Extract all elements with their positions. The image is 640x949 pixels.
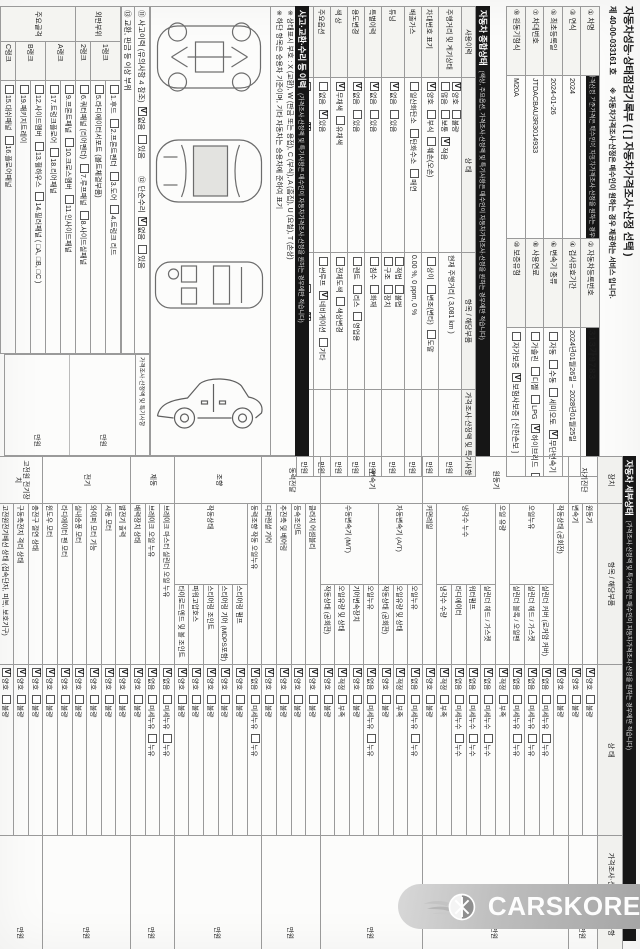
checkbox-checked[interactable] <box>426 668 435 677</box>
checkbox-checked[interactable] <box>427 82 436 91</box>
checkbox-unchecked[interactable] <box>5 136 14 145</box>
checkbox-unchecked[interactable] <box>455 734 464 743</box>
checkbox-unchecked[interactable] <box>65 85 74 94</box>
checkbox-unchecked[interactable] <box>353 695 362 704</box>
checkbox-checked[interactable] <box>324 668 333 677</box>
option: 누유 <box>162 732 169 756</box>
option: 많음 <box>440 80 447 105</box>
checkbox-unchecked[interactable] <box>452 110 461 119</box>
car-cabin-top-diagram <box>149 255 270 315</box>
checkbox-checked[interactable] <box>370 82 379 91</box>
checkbox-unchecked[interactable] <box>319 257 328 266</box>
checkbox-unchecked[interactable] <box>17 695 26 704</box>
checkbox-unchecked[interactable] <box>35 192 44 201</box>
option: 16.플로어패널 <box>4 134 11 188</box>
checkbox-checked[interactable] <box>319 291 328 300</box>
checkbox-unchecked[interactable] <box>80 85 89 94</box>
checkbox-checked[interactable] <box>396 668 405 677</box>
checkbox-unchecked[interactable] <box>148 734 157 743</box>
checkbox-checked[interactable] <box>390 82 399 91</box>
checkbox-unchecked[interactable] <box>367 695 376 704</box>
checkbox-checked[interactable] <box>119 668 128 677</box>
checkbox-unchecked[interactable] <box>353 312 362 321</box>
checkbox-unchecked[interactable] <box>382 695 391 704</box>
checkbox-unchecked[interactable] <box>549 332 558 341</box>
table-cell: 주요골격 <box>1 7 76 42</box>
table-cell: 없음있음 <box>382 78 405 253</box>
option: 없음 <box>352 80 359 105</box>
checkbox-checked[interactable] <box>353 668 362 677</box>
checkbox-checked[interactable] <box>549 430 558 439</box>
option: 없음 <box>389 80 396 105</box>
checkbox-unchecked[interactable] <box>32 695 41 704</box>
table-cell: 등속조인트 <box>291 504 306 665</box>
option: 양호 <box>585 666 592 690</box>
checkbox-unchecked[interactable] <box>90 695 99 704</box>
table-cell: ⑩ 보증유형 <box>507 239 526 328</box>
checkbox-unchecked[interactable] <box>410 129 419 138</box>
checkbox-unchecked[interactable] <box>338 695 347 704</box>
checkbox-unchecked[interactable] <box>513 695 522 704</box>
table-cell: 수동변속기 (M/T) <box>320 504 378 585</box>
table-cell: 작동상태 (공회전) <box>554 504 569 665</box>
option: 불량 <box>293 693 300 717</box>
checkbox-checked[interactable] <box>338 668 347 677</box>
checkbox-unchecked[interactable] <box>65 138 74 147</box>
option: 불량 <box>308 693 315 717</box>
checkbox-unchecked[interactable] <box>236 695 245 704</box>
checkbox-checked[interactable] <box>452 82 461 91</box>
option: 불량 <box>177 693 184 717</box>
checkbox-checked[interactable] <box>513 668 522 677</box>
checkbox-unchecked[interactable] <box>542 695 551 704</box>
table-cell: 오일누유 <box>364 584 379 665</box>
option: 있음 <box>137 133 146 159</box>
option: 양호 <box>264 666 271 690</box>
table-cell: 색 상 <box>331 7 348 78</box>
table-cell: 제동 <box>131 457 175 504</box>
table-cell: 실린더 헤드 / 가스켓 <box>525 584 540 665</box>
option: 양호 <box>89 666 96 690</box>
option: 불량 <box>425 693 432 717</box>
option: 14.필러패널 ( □A, □B, □C ) <box>34 190 41 283</box>
checkbox-unchecked[interactable] <box>35 142 44 151</box>
checkbox-checked[interactable] <box>309 668 318 677</box>
table-row: 주행거리 및 계기상태양호불량많음보통적음현재 주행거리 ( 3,081 km … <box>439 7 462 477</box>
checkbox-unchecked[interactable] <box>557 695 566 704</box>
option: 있음 <box>137 243 146 269</box>
checkbox-unchecked[interactable] <box>427 110 436 119</box>
checkbox-unchecked[interactable] <box>353 285 362 294</box>
checkbox-checked[interactable] <box>512 373 521 382</box>
table-row: 전기발전기 출력양호불량만원 <box>116 457 131 949</box>
checkbox-checked[interactable] <box>265 668 274 677</box>
checkbox-checked[interactable] <box>17 668 26 677</box>
table-cell: 없음미세누수누수 <box>452 665 467 836</box>
checkbox-checked[interactable] <box>542 668 551 677</box>
checkbox-unchecked[interactable] <box>484 695 493 704</box>
table-cell: 만원 <box>0 836 43 949</box>
field-line: 0.00 %, 0 ppm, 0 % <box>409 255 417 387</box>
table-cell: 구동축전지 격리 상태 <box>14 504 29 665</box>
checkbox-unchecked[interactable] <box>280 695 289 704</box>
checkbox-unchecked[interactable] <box>138 245 147 254</box>
table-cell: 고전원 전기장치 <box>0 457 43 504</box>
checkbox-unchecked[interactable] <box>528 695 537 704</box>
table-cell: 양호불량 <box>28 665 43 836</box>
option: 불량 <box>89 693 96 717</box>
option: 보험사보증 [ 신한손보 ] <box>511 371 520 453</box>
option: 양호 <box>177 666 184 690</box>
field-line: 없음있음 <box>368 80 379 250</box>
table-cell: 추진축 및 베어링 <box>276 504 291 665</box>
option: 불량 <box>118 693 125 717</box>
accident-price-header: 가격조사·산정액 및 특기사항 <box>135 355 149 455</box>
checkbox-checked[interactable] <box>134 668 143 677</box>
checkbox-unchecked[interactable] <box>370 110 379 119</box>
checkbox-unchecked[interactable] <box>411 734 420 743</box>
checkbox-unchecked[interactable] <box>336 297 345 306</box>
option: 침수 <box>369 255 376 280</box>
checkbox-unchecked[interactable] <box>512 332 521 341</box>
table-cell: 적정부족 <box>393 665 408 836</box>
checkbox-unchecked[interactable] <box>294 695 303 704</box>
field-line: 일산화탄소탄화수소매연 <box>408 80 419 250</box>
checkbox-unchecked[interactable] <box>61 695 70 704</box>
checkbox-unchecked[interactable] <box>469 695 478 704</box>
table-cell: 양호불량 <box>174 665 189 836</box>
option: 적법 <box>394 255 401 280</box>
option: 영업용 <box>352 310 359 341</box>
checkbox-unchecked[interactable] <box>65 195 74 204</box>
table-cell: 발전기 출력 <box>116 504 131 665</box>
table-cell: 라디에이터 팬 모터 <box>58 504 73 665</box>
checkbox-checked[interactable] <box>557 668 566 677</box>
option: 훼손(오손) <box>426 135 433 177</box>
roof-top-icon <box>152 133 267 209</box>
field-line: ⑨ 원동기형식 <box>512 9 520 73</box>
accident-history-row: ⑪ 사고이력 (유의사항 4 참조) 없음있음⑫ 단순수리 없음있음 <box>134 6 150 354</box>
checkbox-unchecked[interactable] <box>163 695 172 704</box>
checkbox-unchecked[interactable] <box>395 285 404 294</box>
checkbox-unchecked[interactable] <box>426 695 435 704</box>
checkbox-unchecked[interactable] <box>221 695 230 704</box>
checkbox-unchecked[interactable] <box>370 285 379 294</box>
checkbox-checked[interactable] <box>105 668 114 677</box>
checkbox-unchecked[interactable] <box>138 135 147 144</box>
checkbox-unchecked[interactable] <box>390 110 399 119</box>
table-cell: 없음있음 <box>314 78 331 253</box>
checkbox-unchecked[interactable] <box>119 695 128 704</box>
table-cell: 커먼레일 <box>422 504 437 665</box>
checkbox-unchecked[interactable] <box>251 734 260 743</box>
checkbox-unchecked[interactable] <box>427 330 436 339</box>
checkbox-unchecked[interactable] <box>427 257 436 266</box>
field-line: M20A <box>512 78 520 236</box>
option: 썬루프 <box>318 255 325 286</box>
field-line: ⑪ 사고이력 (유의사항 4 참조) 없음있음 <box>137 10 148 162</box>
checkbox-checked[interactable] <box>46 668 55 677</box>
overall-status-table: 사용이력상 태항목 / 해당부품가격조사·산정액 및 특기사항주행거리 및 계기… <box>296 6 476 477</box>
checkbox-unchecked[interactable] <box>80 164 89 173</box>
checkbox-checked[interactable] <box>441 137 450 146</box>
field-line: 17.트렁크플로어18.리어패널 <box>47 83 58 351</box>
option: 없음 <box>369 80 376 105</box>
scanned-document-viewport: 자동차성능·상태점검기록부 ( [ ] 자동차가격조사·산정 선택 ) 제 40… <box>0 0 640 949</box>
table-cell: 특별이력 <box>365 7 382 78</box>
option: 9.프론트패널 <box>64 83 71 133</box>
checkbox-unchecked[interactable] <box>80 211 89 220</box>
option: 양호 <box>571 666 578 690</box>
option: 없음 <box>454 666 461 690</box>
checkbox-unchecked[interactable] <box>411 695 420 704</box>
checkbox-checked[interactable] <box>367 668 376 677</box>
option: 4.트렁크 리드 <box>109 203 116 255</box>
table-cell: C랭크 <box>1 42 16 81</box>
checkbox-checked[interactable] <box>440 668 449 677</box>
field-line: 19.패키지트레이 <box>17 83 28 351</box>
checkbox-unchecked[interactable] <box>549 388 558 397</box>
option: 불량 <box>191 693 198 717</box>
option: 미세누유 <box>147 693 154 729</box>
checkbox-checked[interactable] <box>294 668 303 677</box>
detail-status-section-bar: 자동차 세부상태 (가격조사·산정액 및 특기사항은 매수인이 자동차가격조사·… <box>623 456 636 941</box>
checkbox-unchecked[interactable] <box>95 85 104 94</box>
checkbox-unchecked[interactable] <box>427 137 436 146</box>
option: 적음 <box>440 135 447 160</box>
checkbox-unchecked[interactable] <box>35 85 44 94</box>
table-cell: 0.00 %, 0 ppm, 0 % <box>405 253 422 390</box>
checkbox-unchecked[interactable] <box>396 695 405 704</box>
checkbox-checked[interactable] <box>336 82 345 91</box>
checkbox-unchecked[interactable] <box>265 695 274 704</box>
checkbox-unchecked[interactable] <box>441 82 450 91</box>
table-cell: 만원 <box>131 836 175 949</box>
table-cell: 상 태 <box>462 78 476 253</box>
checkbox-unchecked[interactable] <box>531 332 540 341</box>
checkbox-checked[interactable] <box>353 82 362 91</box>
checkbox-unchecked[interactable] <box>5 85 14 94</box>
checkbox-checked[interactable] <box>382 668 391 677</box>
checkbox-unchecked[interactable] <box>110 172 119 181</box>
option: 세미오토 <box>548 386 557 424</box>
table-cell: 적법불법구조장치 <box>382 253 405 390</box>
checkbox-unchecked[interactable] <box>324 695 333 704</box>
checkbox-unchecked[interactable] <box>319 338 328 347</box>
car-diagram-panel <box>150 6 271 456</box>
option: 누유 <box>541 732 548 756</box>
table-cell: 배력장치 상태 <box>131 504 146 665</box>
checkbox-unchecked[interactable] <box>384 257 393 266</box>
option: 불량 <box>352 693 359 717</box>
option: 17.트렁크플로어 <box>49 83 56 143</box>
option: 양호 <box>133 666 140 690</box>
checkbox-unchecked[interactable] <box>531 395 540 404</box>
checkbox-checked[interactable] <box>163 668 172 677</box>
option: 미세누수 <box>454 693 461 729</box>
table-row: 조향동력조향 작동 오일누유없음미세누유누유만원 <box>247 457 262 949</box>
table-cell: 브레이크 마스터 실린더 오일 누유 <box>160 504 175 665</box>
checkbox-unchecked[interactable] <box>586 695 595 704</box>
option: 화재 <box>369 283 376 308</box>
checkbox-unchecked[interactable] <box>178 695 187 704</box>
checkbox-unchecked[interactable] <box>572 695 581 704</box>
checkbox-unchecked[interactable] <box>395 257 404 266</box>
checkbox-unchecked[interactable] <box>370 257 379 266</box>
table-cell: 썬루프네비게이션기타 <box>314 253 331 390</box>
option: 6.쿼터패널 (리어펜더) <box>79 83 86 159</box>
checkbox-unchecked[interactable] <box>528 734 537 743</box>
checkbox-unchecked[interactable] <box>110 85 119 94</box>
service-note: ※ 자동차가격조사·산정은 매수인이 원하는 경우 제공하는 서비스 입니다. <box>608 87 615 298</box>
checkbox-unchecked[interactable] <box>110 205 119 214</box>
field-line: 자가보증보험사보증 [ 신한손보 ] <box>511 330 521 474</box>
checkbox-unchecked[interactable] <box>499 695 508 704</box>
checkbox-checked[interactable] <box>236 668 245 677</box>
option: 불량 <box>1 693 8 717</box>
field-line: 양호부식훼손(오손) <box>425 80 436 250</box>
checkbox-unchecked[interactable] <box>384 285 393 294</box>
checkbox-unchecked[interactable] <box>207 695 216 704</box>
checkbox-unchecked[interactable] <box>110 119 119 128</box>
table-cell: 만원 <box>43 836 131 949</box>
table-row: 장치항목 / 해당부품상 태가격조사·산정액 및 특기사항 <box>598 457 623 949</box>
table-cell: 장치 <box>598 457 623 504</box>
checkbox-unchecked[interactable] <box>309 695 318 704</box>
checkbox-unchecked[interactable] <box>2 695 11 704</box>
table-cell: 없음미세누유누유 <box>408 665 423 836</box>
checkbox-checked[interactable] <box>138 107 147 116</box>
checkbox-unchecked[interactable] <box>20 85 29 94</box>
status-legend-notes: ※ 상태표시 부호 : X (교환), W (판금 또는 용접), C (부식)… <box>271 6 295 456</box>
option: 양호 <box>381 666 388 690</box>
table-row: 용도변경없음있음렌트리스영업용만원 <box>348 7 365 477</box>
checkbox-unchecked[interactable] <box>336 257 345 266</box>
checkbox-unchecked[interactable] <box>410 82 419 91</box>
option: 네비게이션 <box>318 289 325 333</box>
checkbox-checked[interactable] <box>484 668 493 677</box>
table-cell: 항목 / 해당부품 <box>462 253 476 390</box>
checkbox-checked[interactable] <box>207 668 216 677</box>
option: 디젤 <box>530 365 539 390</box>
checkbox-unchecked[interactable] <box>469 734 478 743</box>
checkbox-unchecked[interactable] <box>427 285 436 294</box>
checkbox-checked[interactable] <box>455 668 464 677</box>
checkbox-unchecked[interactable] <box>549 360 558 369</box>
checkbox-unchecked[interactable] <box>542 734 551 743</box>
table-cell: 없음미세누유누유 <box>525 665 540 836</box>
checkbox-unchecked[interactable] <box>531 367 540 376</box>
checkbox-unchecked[interactable] <box>441 110 450 119</box>
checkbox-checked[interactable] <box>75 668 84 677</box>
checkbox-unchecked[interactable] <box>163 734 172 743</box>
table-row: 2랭크6.쿼터패널 (리어펜더)7.루프패널8.사이드실패널 <box>76 7 91 354</box>
table-cell: 2024년01월26일 ~ 2028년01월25일 <box>563 328 582 477</box>
table-cell: 양호불량 <box>72 665 87 836</box>
option: 양호 <box>323 666 330 690</box>
field-line: 9.프론트패널10.크로스멤버11.인사이드패널 <box>62 83 73 351</box>
table-cell: 충전구 절연 상태 <box>28 504 43 665</box>
checkbox-checked[interactable] <box>499 668 508 677</box>
checkbox-checked[interactable] <box>192 668 201 677</box>
option: 일산화탄소 <box>409 80 416 124</box>
watermark-text: CARSKOREA <box>488 891 640 922</box>
checkbox-unchecked[interactable] <box>319 82 328 91</box>
checkbox-checked[interactable] <box>251 668 260 677</box>
table-cell: ① 차명 <box>581 7 600 76</box>
checkbox-checked[interactable] <box>319 110 328 119</box>
checkbox-checked[interactable] <box>411 668 420 677</box>
checkbox-unchecked[interactable] <box>251 695 260 704</box>
checkbox-checked[interactable] <box>586 668 595 677</box>
option: 15.대쉬패널 <box>4 83 11 131</box>
checkbox-checked[interactable] <box>138 217 147 226</box>
checkbox-unchecked[interactable] <box>50 148 59 157</box>
checkbox-checked[interactable] <box>32 668 41 677</box>
basic-info-table: ① 차명도요타 Prius 2WD (세부모델 : )② 자동차등록번호313가… <box>507 6 601 477</box>
checkbox-unchecked[interactable] <box>440 695 449 704</box>
checkbox-checked[interactable] <box>572 668 581 677</box>
table-cell: 실린더 블록 / 오일팬 <box>510 584 525 665</box>
checkbox-unchecked[interactable] <box>484 734 493 743</box>
checkbox-checked[interactable] <box>221 668 230 677</box>
legend-note-2: ※ 하단 항목은 승용차 기준이며, 기타 자동차는 승용차에 준하여 표기 <box>272 10 283 452</box>
checkbox-checked[interactable] <box>61 668 70 677</box>
checkbox-unchecked[interactable] <box>455 695 464 704</box>
checkbox-unchecked[interactable] <box>367 734 376 743</box>
table-cell: 변속기 <box>568 504 583 665</box>
checkbox-unchecked[interactable] <box>105 695 114 704</box>
table-cell: 양호불량 <box>306 665 321 836</box>
option: 불량 <box>31 693 38 717</box>
table-cell: ⑥ 변속기 종류 <box>544 239 563 328</box>
checkbox-checked[interactable] <box>528 668 537 677</box>
checkbox-checked[interactable] <box>531 424 540 433</box>
field-line: 구조장치 <box>382 255 393 387</box>
checkbox-checked[interactable] <box>178 668 187 677</box>
checkbox-unchecked[interactable] <box>353 257 362 266</box>
table-cell: 오일유량 및 상태 <box>393 584 408 665</box>
option: 적정 <box>395 666 402 690</box>
checkbox-checked[interactable] <box>280 668 289 677</box>
checkbox-unchecked[interactable] <box>336 116 345 125</box>
field-line: 상이변조(변타)도말 <box>425 255 436 387</box>
checkbox-checked[interactable] <box>469 668 478 677</box>
checkbox-unchecked[interactable] <box>353 110 362 119</box>
table-cell: 없음있음 <box>365 78 382 253</box>
checkbox-unchecked[interactable] <box>75 695 84 704</box>
underbody-frame-icon <box>152 14 267 100</box>
checkbox-checked[interactable] <box>148 668 157 677</box>
option: 누유 <box>366 732 373 756</box>
table-cell: 적정부족 <box>335 665 350 836</box>
checkbox-unchecked[interactable] <box>192 695 201 704</box>
table-cell: 313가9783 <box>581 328 600 477</box>
checkbox-checked[interactable] <box>90 668 99 677</box>
checkbox-unchecked[interactable] <box>148 695 157 704</box>
checkbox-unchecked[interactable] <box>513 734 522 743</box>
checkbox-unchecked[interactable] <box>410 169 419 178</box>
table-cell: 항목 / 해당부품 <box>598 504 623 665</box>
table-cell: 실린더 헤드 / 가스켓 <box>481 584 496 665</box>
field-line: 12.사이드멤버13.휠하우스14.필러패널 ( □A, □B, □C ) <box>32 83 43 351</box>
checkbox-checked[interactable] <box>2 668 11 677</box>
table-row: 변속기자동변속기 (A/T)오일누유없음미세누유누유만원 <box>408 457 423 949</box>
checkbox-unchecked[interactable] <box>46 695 55 704</box>
checkbox-unchecked[interactable] <box>50 85 59 94</box>
option: 불량 <box>571 693 578 717</box>
checkbox-unchecked[interactable] <box>134 695 143 704</box>
